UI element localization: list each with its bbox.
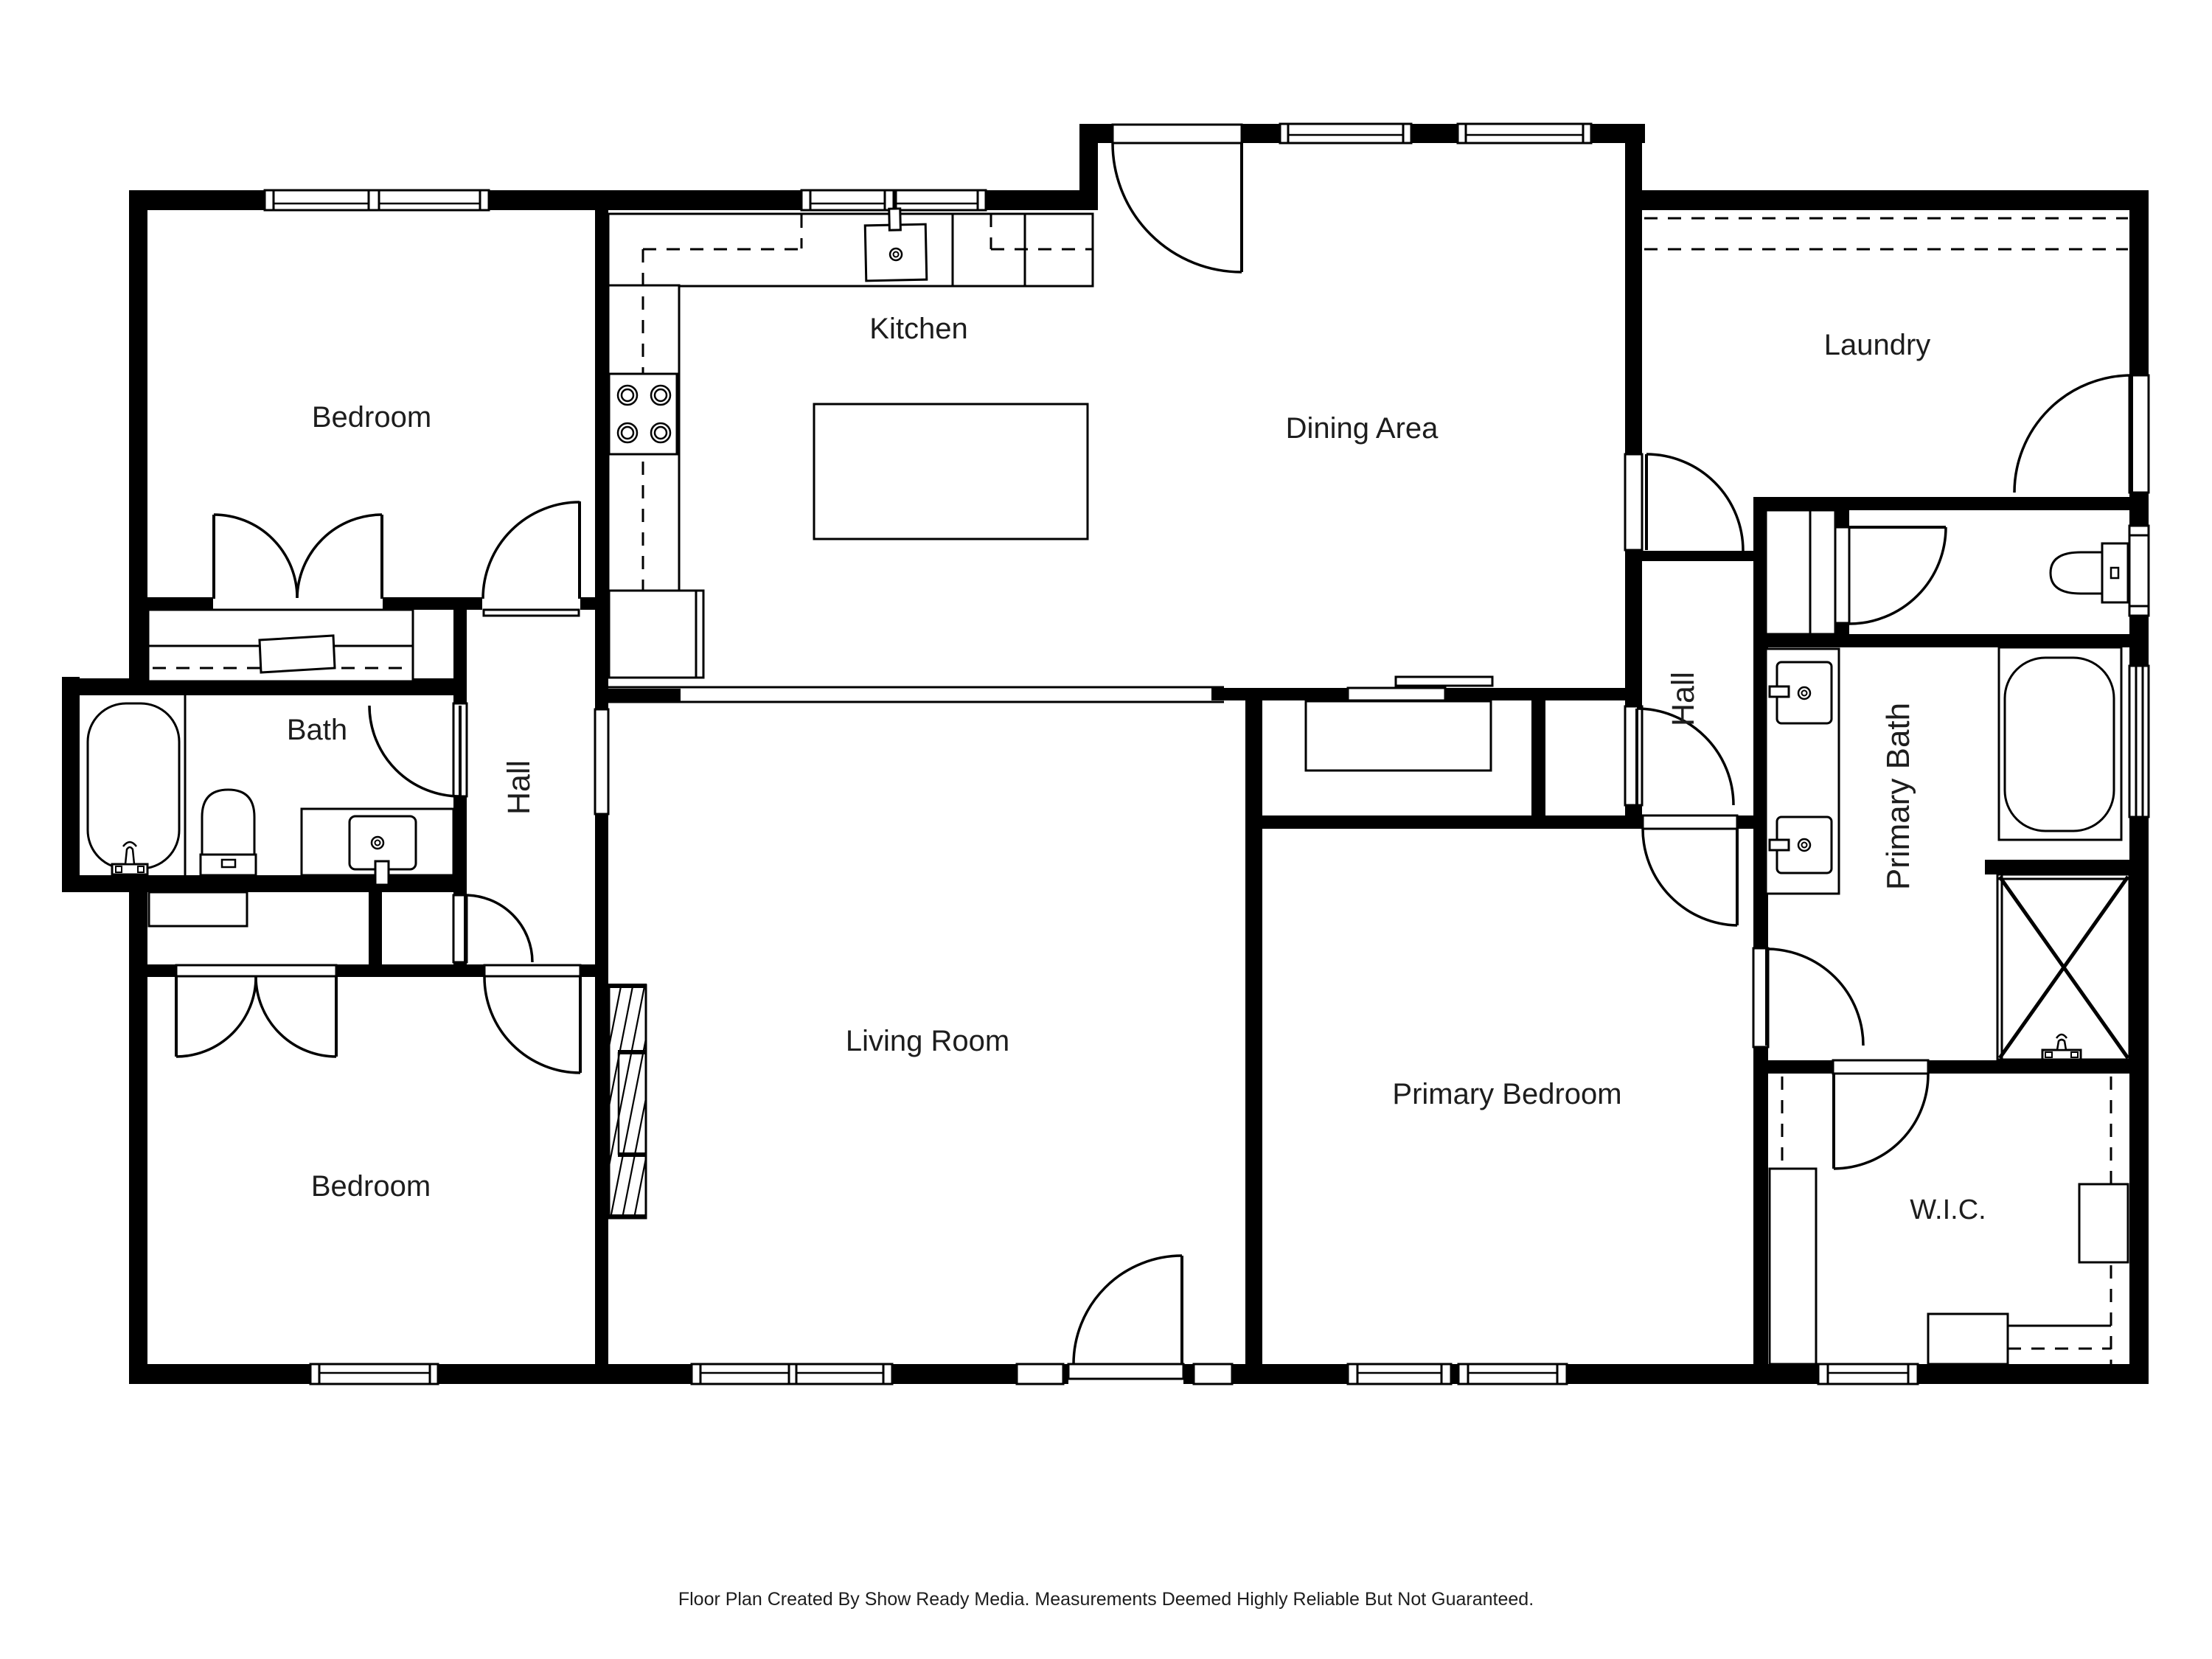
svg-text:Bedroom: Bedroom — [311, 1170, 431, 1203]
svg-text:Primary Bedroom: Primary Bedroom — [1392, 1078, 1621, 1110]
svg-text:Hall: Hall — [501, 760, 537, 815]
svg-text:Hall: Hall — [1666, 672, 1701, 726]
svg-text:Primary Bath: Primary Bath — [1880, 703, 1916, 890]
svg-text:Floor Plan Created By Show Rea: Floor Plan Created By Show Ready Media. … — [678, 1589, 1534, 1610]
svg-text:Laundry: Laundry — [1824, 329, 1931, 361]
svg-text:Dining Area: Dining Area — [1286, 412, 1439, 445]
svg-text:W.I.C.: W.I.C. — [1910, 1194, 1986, 1225]
svg-text:Bedroom: Bedroom — [312, 401, 431, 434]
svg-text:Kitchen: Kitchen — [869, 313, 967, 345]
svg-text:Bath: Bath — [287, 714, 347, 746]
svg-text:Living Room: Living Room — [846, 1025, 1009, 1057]
